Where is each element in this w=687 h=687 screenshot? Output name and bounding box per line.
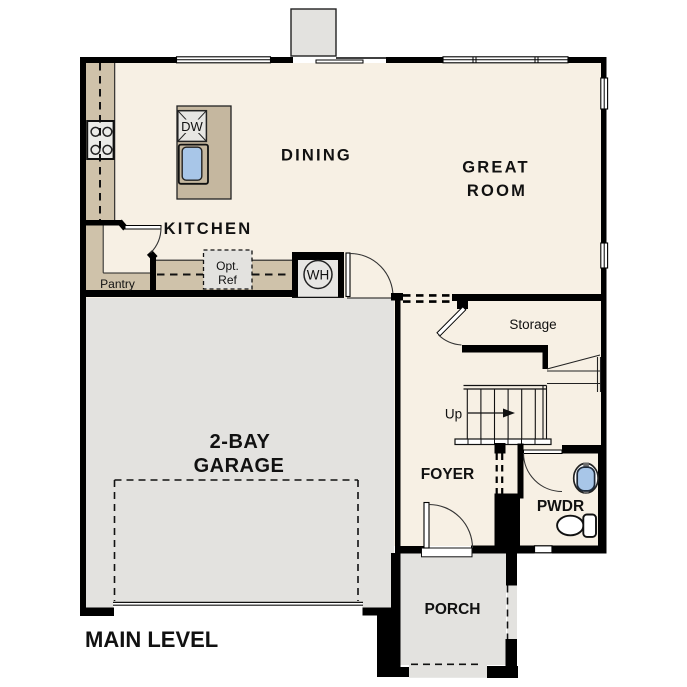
svg-text:PWDR: PWDR xyxy=(537,498,584,515)
svg-text:2-BAY: 2-BAY xyxy=(210,431,271,453)
svg-text:DW: DW xyxy=(181,119,203,134)
svg-text:Storage: Storage xyxy=(509,317,556,332)
svg-text:MAIN LEVEL: MAIN LEVEL xyxy=(85,627,218,652)
svg-text:WH: WH xyxy=(307,268,330,283)
svg-text:ROOM: ROOM xyxy=(467,182,527,200)
svg-text:KITCHEN: KITCHEN xyxy=(164,220,253,238)
svg-text:PORCH: PORCH xyxy=(425,601,481,618)
svg-text:GREAT: GREAT xyxy=(462,158,530,176)
svg-text:Pantry: Pantry xyxy=(100,277,135,291)
svg-text:GARAGE: GARAGE xyxy=(194,455,285,477)
svg-text:Opt.: Opt. xyxy=(216,259,239,273)
svg-text:FOYER: FOYER xyxy=(421,466,474,483)
svg-text:Ref: Ref xyxy=(218,273,237,287)
svg-text:Up: Up xyxy=(445,407,462,422)
svg-text:DINING: DINING xyxy=(281,146,352,164)
